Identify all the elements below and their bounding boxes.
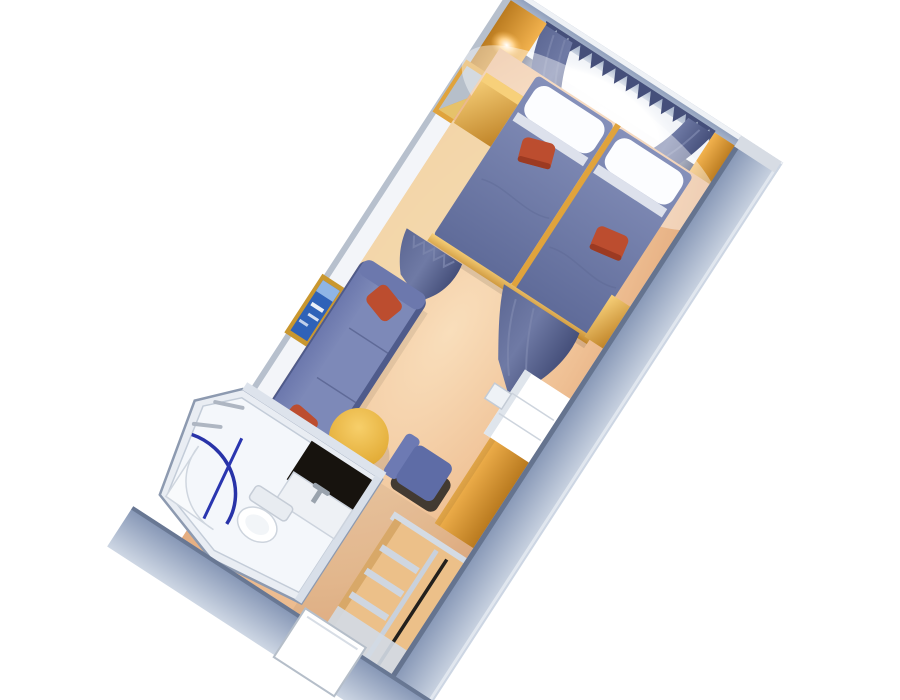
cabin-group bbox=[101, 0, 783, 700]
stateroom-floorplan: Ocean-view stateroom 3D floor plan bbox=[0, 0, 900, 700]
cabin-rendering: Ocean-view stateroom 3D floor plan bbox=[0, 0, 900, 700]
